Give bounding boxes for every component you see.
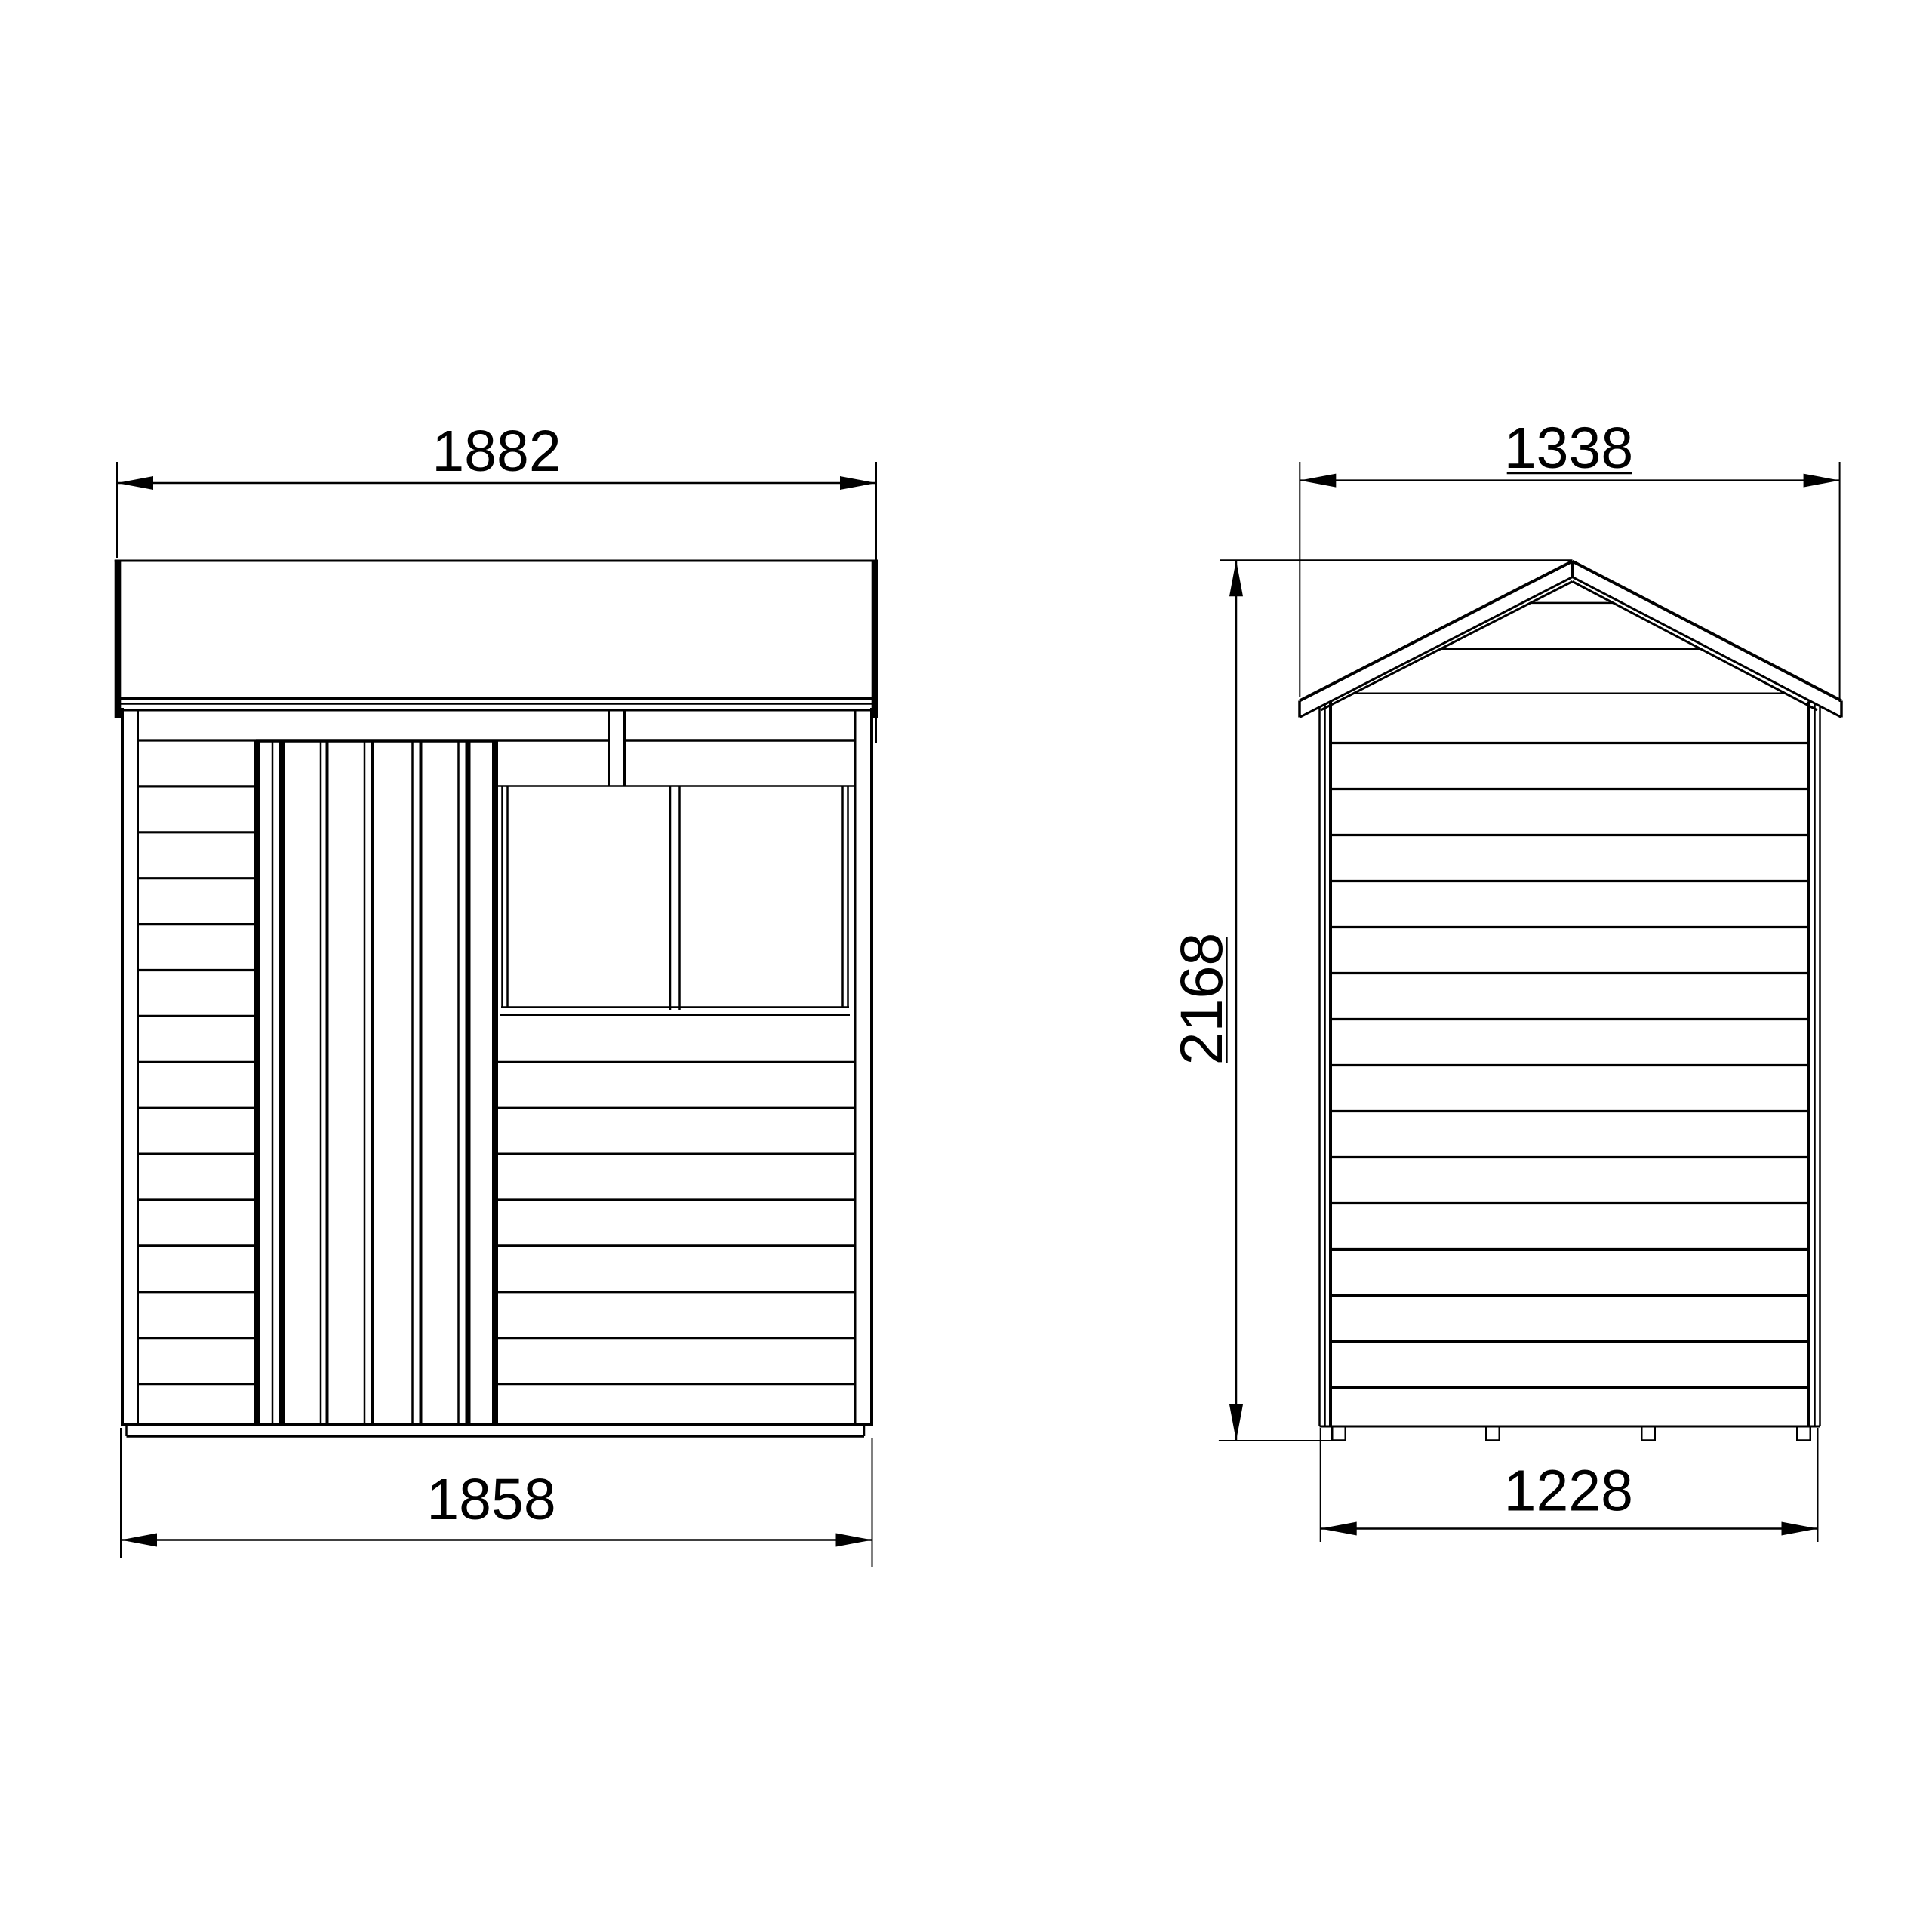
svg-text:1228: 1228 — [1504, 1459, 1633, 1524]
svg-text:2168: 2168 — [1168, 933, 1235, 1066]
svg-text:1882: 1882 — [432, 419, 561, 484]
svg-text:1338: 1338 — [1504, 416, 1633, 481]
svg-text:1858: 1858 — [426, 1467, 555, 1532]
